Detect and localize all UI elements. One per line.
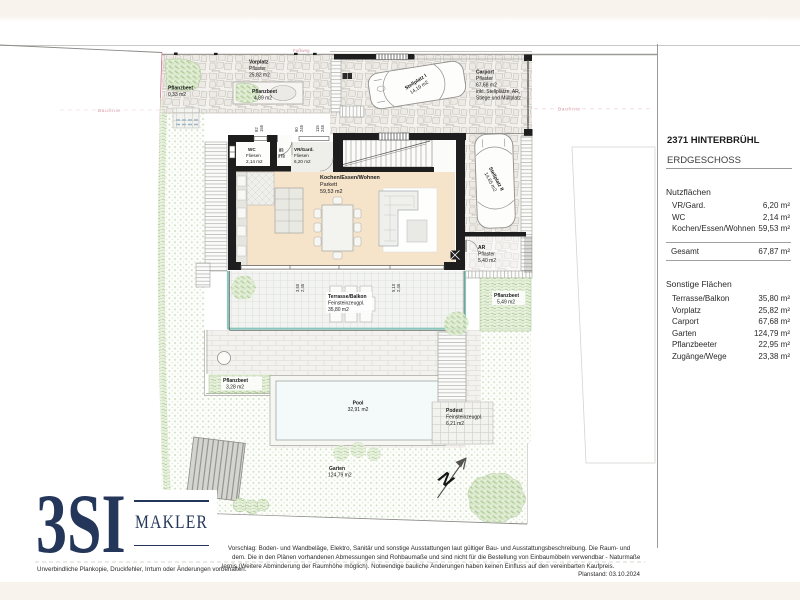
- svg-text:Garten: Garten: [329, 466, 345, 472]
- svg-text:Pflaster: Pflaster: [249, 66, 266, 72]
- svg-text:6,20 m2: 6,20 m2: [294, 159, 311, 164]
- svg-text:Kochen/Essen/Wohnen: Kochen/Essen/Wohnen: [320, 175, 380, 181]
- svg-text:Pflanzbeet: Pflanzbeet: [252, 89, 277, 95]
- svg-text:Terrasse/Balkon: Terrasse/Balkon: [328, 294, 367, 300]
- svg-text:155: 155: [259, 124, 264, 132]
- svg-text:Stiege und Müllplatz: Stiege und Müllplatz: [476, 96, 522, 102]
- svg-text:5,49 m2: 5,49 m2: [497, 300, 515, 306]
- svg-text:Pflanzbeet: Pflanzbeet: [168, 86, 193, 92]
- svg-text:Pflanzbeet: Pflanzbeet: [494, 293, 519, 299]
- svg-text:Parkett: Parkett: [320, 182, 338, 188]
- svg-text:Fliesen: Fliesen: [294, 153, 309, 158]
- svg-text:3,28 m2: 3,28 m2: [226, 385, 244, 391]
- svg-text:Feinsteinzeugpl.: Feinsteinzeugpl.: [328, 301, 364, 307]
- svg-text:0,33 m2: 0,33 m2: [168, 92, 186, 98]
- svg-text:59,53 m2: 59,53 m2: [320, 189, 342, 195]
- svg-text:35,80 m2: 35,80 m2: [328, 307, 349, 313]
- svg-text:Feinsteinzeugpl.: Feinsteinzeugpl.: [446, 415, 482, 421]
- svg-text:Carport: Carport: [476, 70, 494, 76]
- svg-text:Fußweg: Fußweg: [293, 48, 310, 53]
- svg-text:Pflaster: Pflaster: [476, 76, 493, 82]
- svg-text:Baulinie: Baulinie: [98, 108, 121, 113]
- svg-text:4,89 m2: 4,89 m2: [254, 96, 272, 102]
- svg-text:Podest: Podest: [446, 408, 463, 414]
- svg-text:Vorplatz: Vorplatz: [249, 60, 269, 66]
- svg-text:6,21 m2: 6,21 m2: [446, 421, 464, 427]
- svg-text:WC: WC: [248, 147, 256, 152]
- svg-text:245: 245: [320, 124, 325, 132]
- svg-text:AR: AR: [478, 245, 486, 251]
- svg-text:Pflaster: Pflaster: [478, 252, 495, 258]
- svg-text:inkl. Stellplätze, AR,: inkl. Stellplätze, AR,: [476, 89, 520, 95]
- svg-text:275: 275: [278, 153, 285, 158]
- svg-text:25,82 m2: 25,82 m2: [249, 73, 270, 79]
- svg-text:245: 245: [299, 124, 304, 132]
- svg-text:2,14 m2: 2,14 m2: [246, 159, 263, 164]
- svg-text:2,45: 2,45: [300, 283, 305, 292]
- svg-text:32,91 m2: 32,91 m2: [348, 407, 369, 413]
- svg-text:67,68 m2: 67,68 m2: [476, 83, 497, 89]
- svg-text:Pool: Pool: [353, 401, 364, 407]
- svg-text:Pflanzbeet: Pflanzbeet: [223, 378, 248, 384]
- svg-text:VR/Gard.: VR/Gard.: [294, 147, 314, 152]
- svg-text:124,79 m2: 124,79 m2: [328, 473, 352, 479]
- svg-text:85: 85: [279, 147, 284, 152]
- svg-text:5,40 m2: 5,40 m2: [478, 258, 496, 264]
- svg-text:2,45: 2,45: [396, 283, 401, 292]
- svg-text:Fliesen: Fliesen: [246, 153, 261, 158]
